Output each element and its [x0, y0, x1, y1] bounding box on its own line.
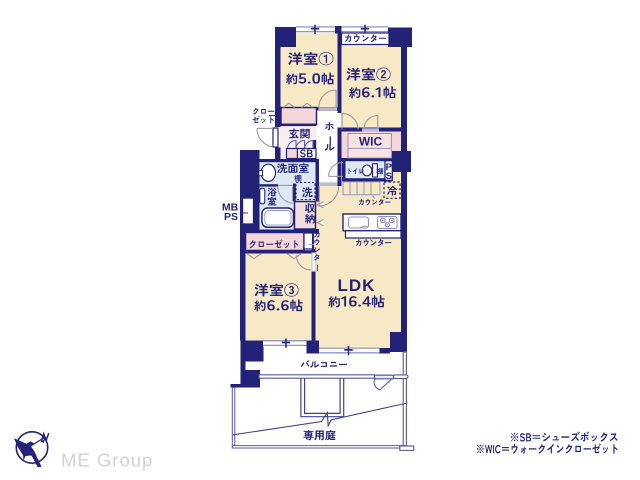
svg-text:PS: PS [224, 211, 238, 223]
svg-text:WIC: WIC [359, 135, 383, 149]
svg-text:ME Group: ME Group [61, 450, 153, 471]
svg-text:S: S [386, 171, 392, 182]
svg-text:LDK: LDK [338, 276, 376, 295]
